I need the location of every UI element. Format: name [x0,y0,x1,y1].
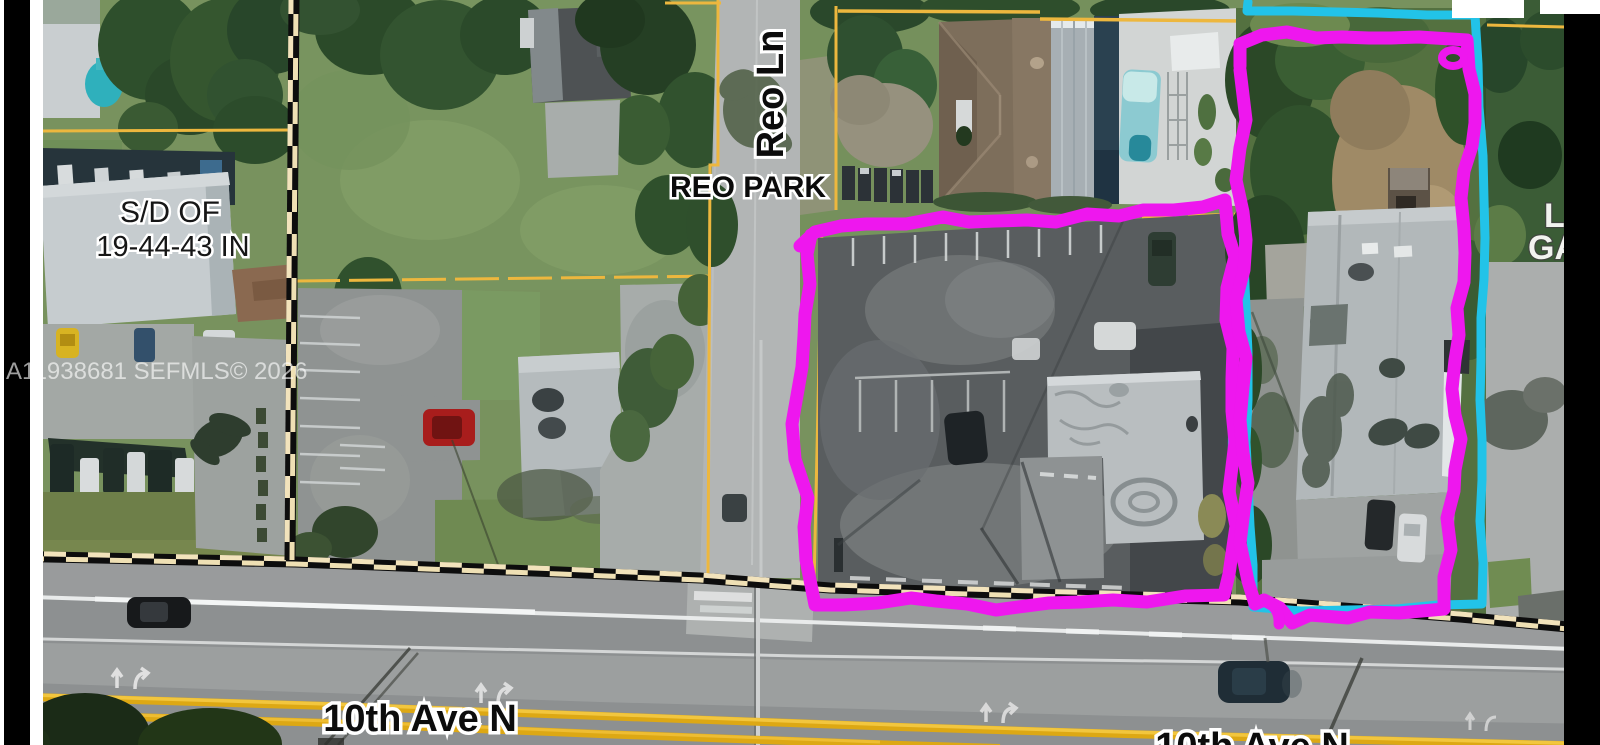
svg-text:Reo Ln: Reo Ln [750,30,792,159]
svg-text:A11938681 SEFMLS© 2026: A11938681 SEFMLS© 2026 [6,358,307,385]
svg-text:REO PARK: REO PARK [670,171,826,204]
svg-text:19-44-43 IN: 19-44-43 IN [96,231,249,263]
svg-text:10th Ave N: 10th Ave N [323,698,517,740]
svg-text:S/D OF: S/D OF [120,196,220,229]
svg-text:10th Ave N: 10th Ave N [1155,726,1349,745]
